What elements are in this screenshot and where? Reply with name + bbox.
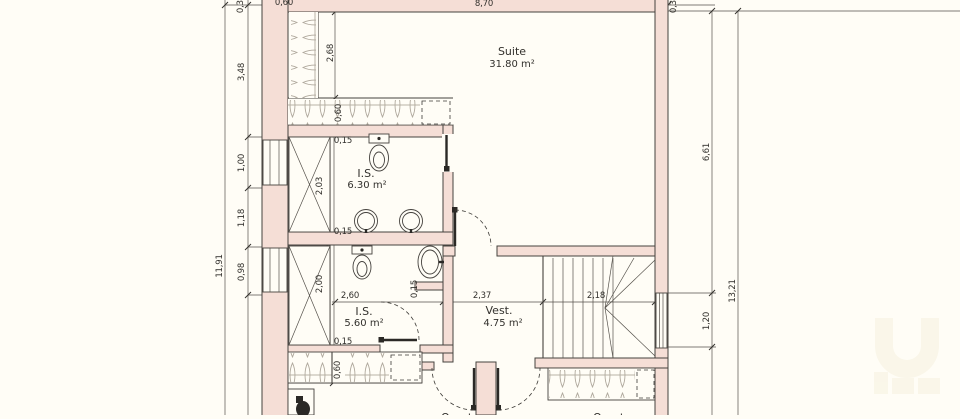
floor-plan-canvas: Suite 31.80 m² I.S. 6.30 m² I.S. 5.60 m²… (0, 0, 960, 415)
door-bedroom-left (432, 368, 477, 411)
floor-plan: Suite 31.80 m² I.S. 6.30 m² I.S. 5.60 m²… (0, 0, 960, 415)
wall-is2-south-right (420, 345, 453, 353)
toilet-is-top (369, 134, 389, 171)
dim-is-bottom-niche: 0,15 (410, 280, 420, 298)
window-left-lower (263, 248, 287, 292)
closet-bottom-left (288, 352, 422, 383)
dim-left-total: 11,91 (215, 254, 225, 277)
window-left-upper (263, 140, 287, 185)
dim-left-window2: 0,98 (237, 263, 247, 281)
dim-left-pier: 1,18 (237, 209, 247, 227)
sink-is-top-right (400, 210, 423, 234)
wall-door-pier (476, 362, 496, 415)
dim-right-landing: 1,20 (702, 312, 712, 330)
room-label-is-top: I.S. (357, 167, 374, 180)
sink-is-top-left (355, 210, 378, 234)
room-label-vest: Vest. (486, 304, 513, 317)
room-label-below-left: Quarto (441, 411, 479, 415)
dim-top-wall: 0,30 (236, 0, 246, 13)
closet-top-left-vertical (289, 12, 318, 98)
stairs (543, 256, 655, 358)
dim-is-top-wall-a: 0,15 (334, 136, 352, 146)
watermark-logo (874, 318, 940, 394)
wall-stairs-south (535, 358, 668, 368)
closet-suite-horizontal (288, 99, 453, 125)
wall-right-exterior (655, 0, 668, 415)
dim-closet-depth: 0,60 (334, 104, 344, 122)
closet-bottom-right (548, 368, 655, 400)
dim-closet-height: 2,68 (326, 44, 336, 62)
room-label-is-bottom: I.S. (355, 305, 372, 318)
wall-left-exterior (262, 0, 288, 415)
dim-right-upper: 6,61 (702, 143, 712, 161)
dim-top-right-wall: 0,30 (669, 0, 679, 13)
door-bedroom-right (496, 368, 541, 411)
room-area-vest: 4.75 m² (483, 318, 522, 329)
door-suite (452, 207, 491, 246)
dim-is-bottom-height: 2,00 (315, 275, 325, 293)
room-label-suite: Suite (498, 45, 526, 58)
room-area-suite: 31.80 m² (489, 59, 535, 70)
dim-left-top: 3,48 (237, 63, 247, 81)
dim-is-bottom-width: 2,60 (341, 291, 359, 301)
sink-is-bottom (418, 246, 444, 278)
dim-bottom-closet-depth: 0,60 (333, 361, 343, 379)
toilet-is-bottom (352, 246, 372, 279)
dim-is-bottom-wall: 0,15 (334, 337, 352, 347)
dim-vest-width: 2,37 (473, 291, 491, 301)
toilet-bottom-left-clipped (288, 389, 314, 415)
shower-box-lower (289, 246, 330, 345)
room-area-is-top: 6.30 m² (347, 180, 386, 191)
room-area-is-bottom: 5.60 m² (344, 318, 383, 329)
wall-between-bathrooms (288, 232, 453, 245)
dim-is-top-wall-b: 0,15 (334, 227, 352, 237)
wall-suite-south (497, 246, 655, 256)
dim-left-window1: 1,00 (237, 154, 247, 172)
dim-stairs-width: 2,18 (587, 291, 605, 301)
dim-is-top-height: 2,03 (315, 177, 325, 195)
dim-top-suite: 8,70 (475, 0, 493, 9)
wall-top-exterior (262, 0, 668, 12)
door-is-bottom (379, 302, 420, 343)
room-label-below-right: Quarto (593, 411, 631, 415)
wall-suite-south-stub (443, 246, 455, 256)
dim-top-closet: 0,60 (275, 0, 293, 8)
window-stair-landing (656, 293, 667, 348)
dim-right-total: 13,21 (728, 279, 738, 302)
